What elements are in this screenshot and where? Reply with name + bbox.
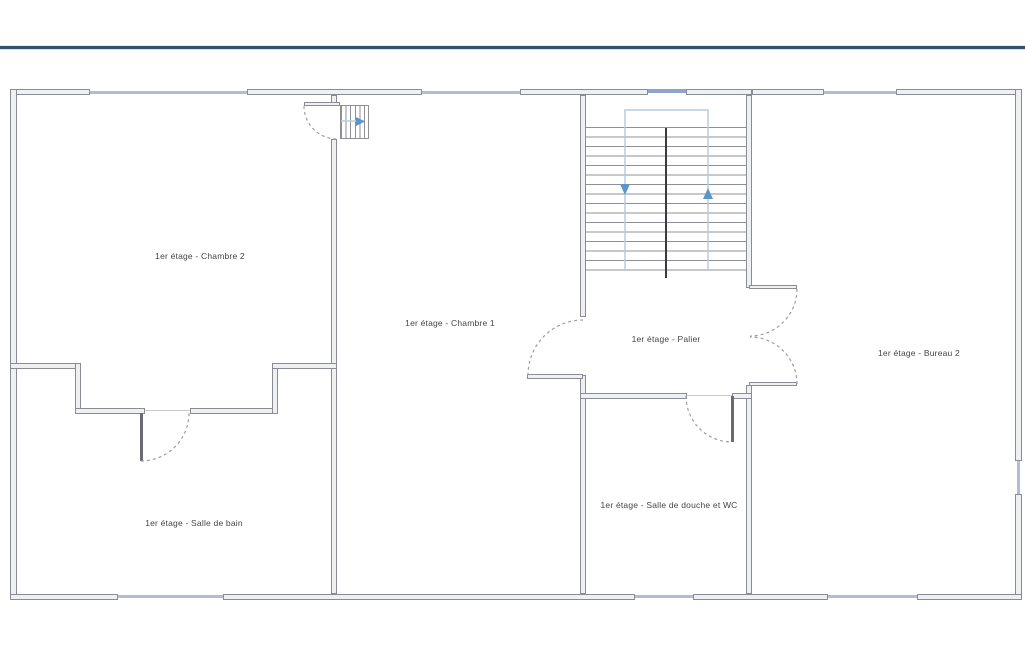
wall-bottom-1 bbox=[10, 594, 118, 600]
wall-bottom-4 bbox=[917, 594, 1022, 600]
window-bottom-2 bbox=[635, 595, 693, 598]
room-label-bureau-2: 1er étage - Bureau 2 bbox=[878, 348, 960, 358]
wall-bain-north-2 bbox=[75, 408, 145, 414]
door-leaf-salle-de-bain bbox=[140, 413, 143, 461]
threshold-douche-door bbox=[687, 395, 732, 396]
main-staircase-center-line bbox=[665, 128, 667, 278]
door-leaf-chambre1 bbox=[527, 374, 583, 379]
window-top-1 bbox=[90, 91, 247, 94]
wall-bain-alcove-left bbox=[75, 363, 81, 414]
threshold-bain-door bbox=[145, 410, 190, 411]
wall-bottom-3 bbox=[693, 594, 828, 600]
wall-palier-south-2 bbox=[732, 393, 752, 399]
door-leaf-chambre2-top bbox=[304, 102, 340, 106]
window-right bbox=[1017, 461, 1020, 494]
wall-bain-north-3 bbox=[190, 408, 278, 414]
wall-top-1 bbox=[10, 89, 90, 95]
header-accent-line bbox=[0, 45, 1025, 50]
wall-bureau2-left-upper bbox=[746, 95, 752, 288]
wall-bain-north-1 bbox=[10, 363, 80, 369]
wall-right-2 bbox=[1015, 494, 1022, 600]
door-arc-chambre1 bbox=[528, 320, 583, 375]
window-bottom-1 bbox=[118, 595, 223, 598]
wall-left bbox=[10, 89, 17, 600]
door-arc-salle-de-bain bbox=[141, 413, 189, 461]
room-label-chambre-1: 1er étage - Chambre 1 bbox=[405, 318, 495, 328]
wall-bureau2-left-lower bbox=[746, 385, 752, 594]
wall-palier-south-1 bbox=[580, 393, 687, 399]
door-leaf-double-bottom bbox=[749, 382, 797, 386]
door-swing-and-guide-overlay bbox=[0, 0, 1025, 650]
wall-top-6 bbox=[896, 89, 1022, 95]
door-arc-double-top bbox=[750, 289, 797, 336]
small-staircase bbox=[340, 105, 369, 139]
door-leaf-double-top bbox=[749, 285, 797, 289]
wall-bottom-2 bbox=[223, 594, 635, 600]
window-top-stairwell bbox=[648, 89, 686, 93]
floor-plan-screenshot: 1er étage - Chambre 2 1er étage - Chambr… bbox=[0, 0, 1025, 650]
room-label-chambre-2: 1er étage - Chambre 2 bbox=[155, 251, 245, 261]
wall-top-5 bbox=[752, 89, 824, 95]
wall-bain-north-4 bbox=[272, 363, 337, 369]
wall-bain-alcove-right bbox=[272, 363, 278, 414]
door-arc-chambre2-top bbox=[304, 106, 337, 139]
door-arc-double-bottom bbox=[750, 337, 797, 384]
window-top-3 bbox=[824, 91, 896, 94]
window-bottom-3 bbox=[828, 595, 917, 598]
wall-douche-left bbox=[580, 375, 586, 594]
door-arc-douche bbox=[686, 396, 732, 442]
door-leaf-douche bbox=[731, 396, 734, 442]
room-label-salle-de-douche-wc: 1er étage - Salle de douche et WC bbox=[600, 500, 737, 510]
window-top-2 bbox=[422, 91, 520, 94]
wall-top-4 bbox=[686, 89, 752, 95]
room-label-palier: 1er étage - Palier bbox=[632, 334, 701, 344]
room-label-salle-de-bain: 1er étage - Salle de bain bbox=[145, 518, 243, 528]
wall-right-1 bbox=[1015, 89, 1022, 461]
